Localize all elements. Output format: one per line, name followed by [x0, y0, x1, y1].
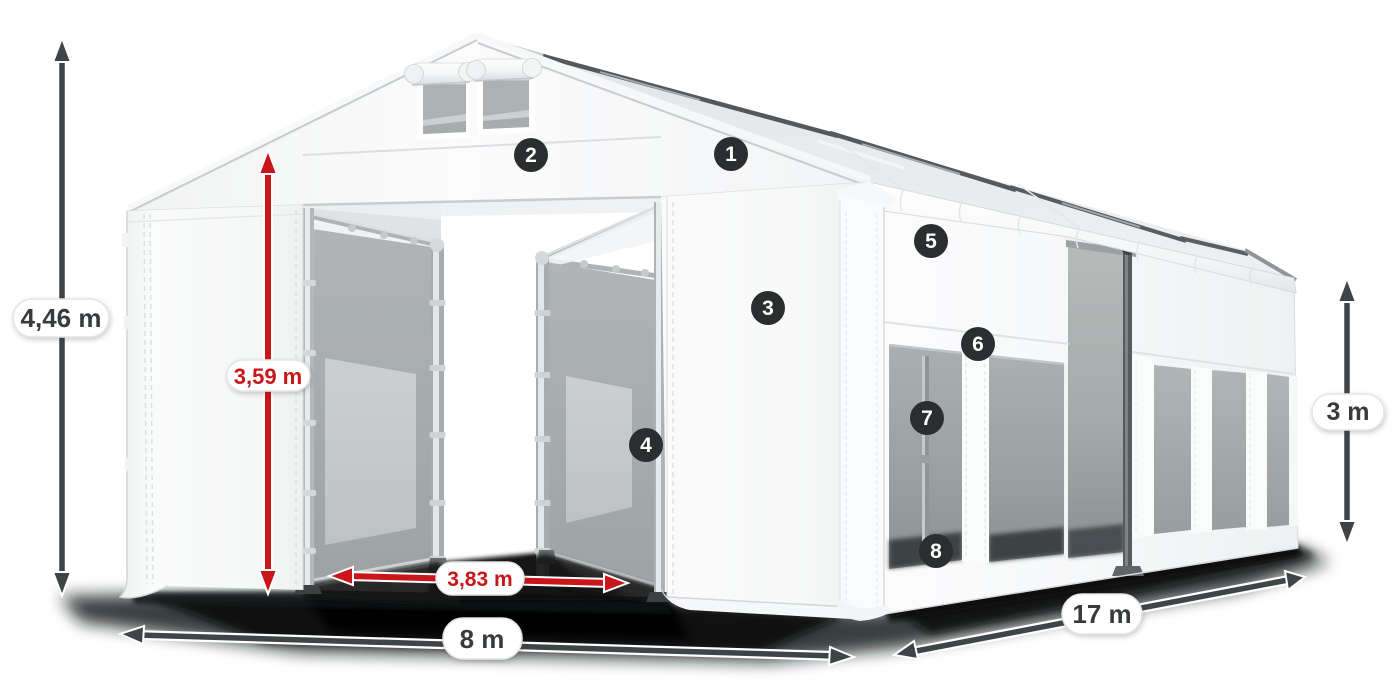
- svg-text:5: 5: [925, 230, 937, 253]
- svg-text:4: 4: [640, 434, 652, 457]
- svg-text:1: 1: [725, 143, 737, 166]
- svg-text:6: 6: [972, 333, 984, 356]
- svg-text:3,83 m: 3,83 m: [447, 568, 512, 591]
- svg-text:2: 2: [525, 144, 537, 167]
- svg-text:4,46 m: 4,46 m: [21, 303, 102, 333]
- svg-text:8 m: 8 m: [460, 624, 505, 654]
- svg-text:3 m: 3 m: [1326, 398, 1369, 426]
- svg-text:3,59 m: 3,59 m: [234, 364, 303, 389]
- svg-text:8: 8: [930, 540, 942, 563]
- svg-text:7: 7: [921, 407, 933, 430]
- svg-text:17 m: 17 m: [1072, 599, 1131, 629]
- svg-text:3: 3: [762, 297, 774, 320]
